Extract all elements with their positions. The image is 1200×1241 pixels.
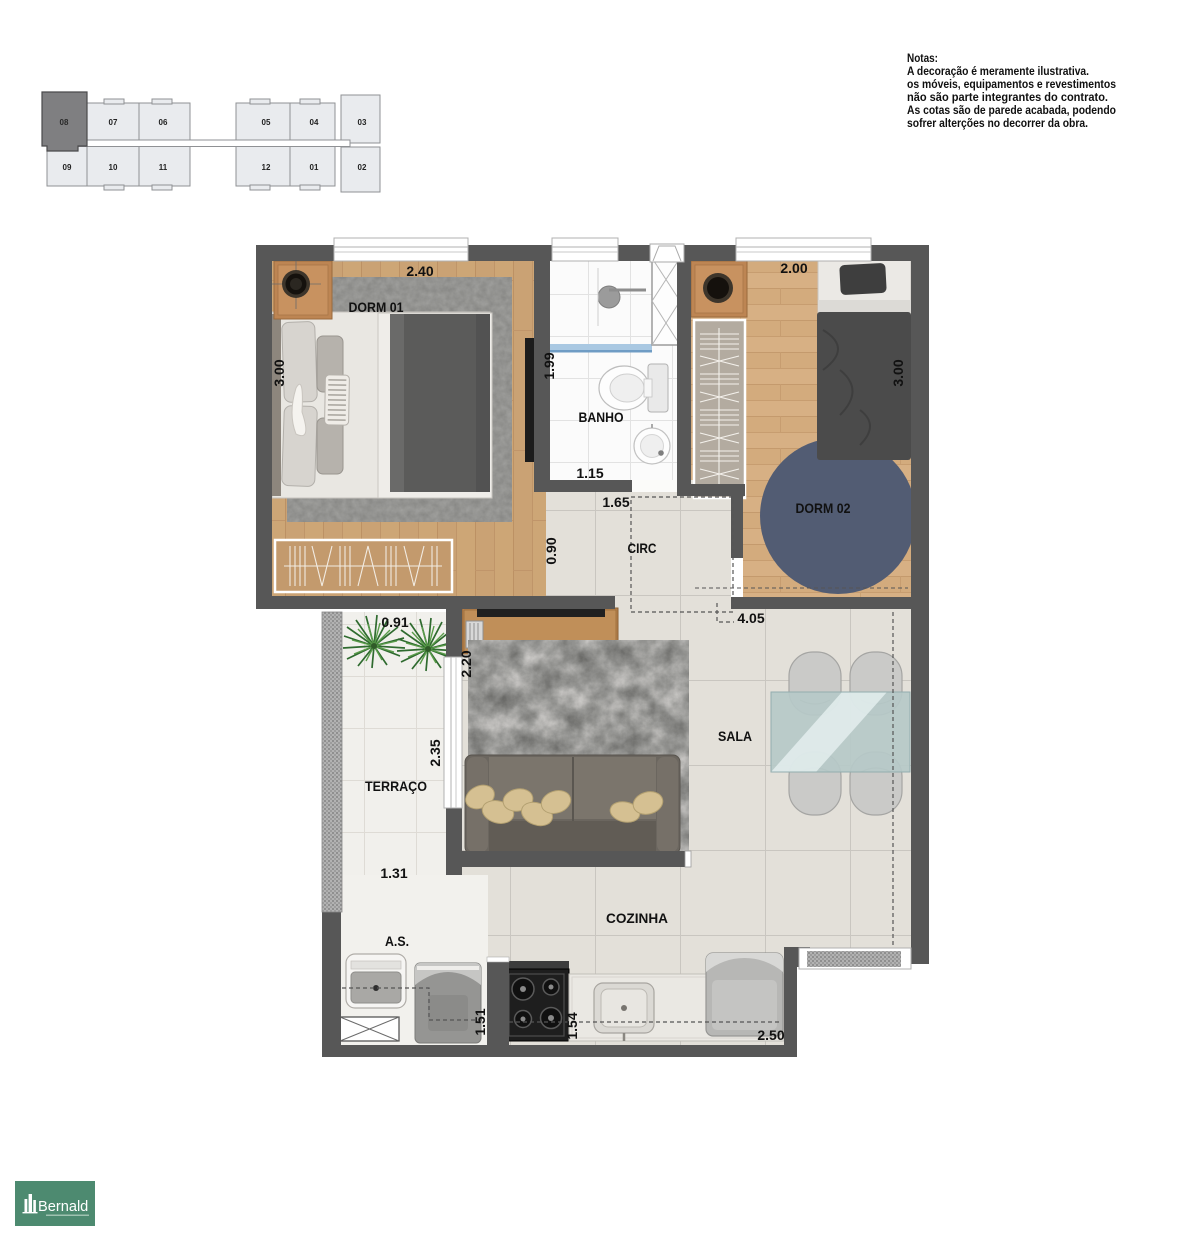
svg-text:12: 12: [262, 163, 271, 172]
svg-text:BANHO: BANHO: [579, 409, 624, 425]
svg-text:sofrer alterções no decorrer d: sofrer alterções no decorrer da obra.: [907, 118, 1088, 130]
svg-text:09: 09: [63, 163, 72, 172]
svg-text:02: 02: [358, 163, 367, 172]
svg-text:1.31: 1.31: [380, 865, 407, 881]
svg-text:DORM 01: DORM 01: [349, 299, 404, 315]
svg-text:11: 11: [159, 163, 168, 172]
svg-text:os móveis, equipamentos e reve: os móveis, equipamentos e revestimentos: [907, 79, 1116, 91]
svg-text:COZINHA: COZINHA: [606, 910, 668, 926]
svg-text:07: 07: [109, 118, 118, 127]
svg-text:1.15: 1.15: [576, 465, 603, 481]
svg-text:05: 05: [262, 118, 271, 127]
svg-text:SALA: SALA: [718, 728, 752, 744]
svg-text:3.00: 3.00: [271, 359, 287, 386]
svg-text:1.99: 1.99: [541, 352, 557, 379]
svg-text:2.35: 2.35: [427, 739, 443, 766]
svg-text:0.91: 0.91: [381, 614, 408, 630]
svg-text:0.90: 0.90: [543, 537, 559, 564]
svg-text:03: 03: [358, 118, 367, 127]
svg-text:2.00: 2.00: [780, 260, 807, 276]
svg-text:10: 10: [109, 163, 118, 172]
svg-text:DORM 02: DORM 02: [796, 500, 851, 516]
svg-text:08: 08: [60, 118, 69, 127]
svg-text:3.00: 3.00: [890, 359, 906, 386]
svg-text:1.54: 1.54: [564, 1012, 580, 1039]
svg-text:1.65: 1.65: [602, 494, 629, 510]
svg-text:4.05: 4.05: [737, 610, 764, 626]
svg-text:2.40: 2.40: [406, 263, 433, 279]
svg-text:2.50: 2.50: [757, 1027, 784, 1043]
svg-text:06: 06: [159, 118, 168, 127]
svg-text:As cotas são de parede acabada: As cotas são de parede acabada, podendo: [907, 105, 1116, 117]
svg-text:A decoração é meramente ilustr: A decoração é meramente ilustrativa.: [907, 66, 1089, 78]
svg-text:não são parte integrantes do c: não são parte integrantes do contrato.: [907, 92, 1108, 104]
svg-text:2.20: 2.20: [458, 650, 474, 677]
svg-text:A.S.: A.S.: [385, 933, 409, 949]
svg-text:Bernald: Bernald: [38, 1199, 88, 1215]
svg-text:04: 04: [310, 118, 319, 127]
svg-text:CIRC: CIRC: [628, 540, 657, 556]
svg-text:Notas:: Notas:: [907, 53, 938, 65]
svg-text:1.51: 1.51: [472, 1008, 488, 1035]
svg-text:TERRAÇO: TERRAÇO: [365, 778, 427, 794]
svg-text:01: 01: [310, 163, 319, 172]
